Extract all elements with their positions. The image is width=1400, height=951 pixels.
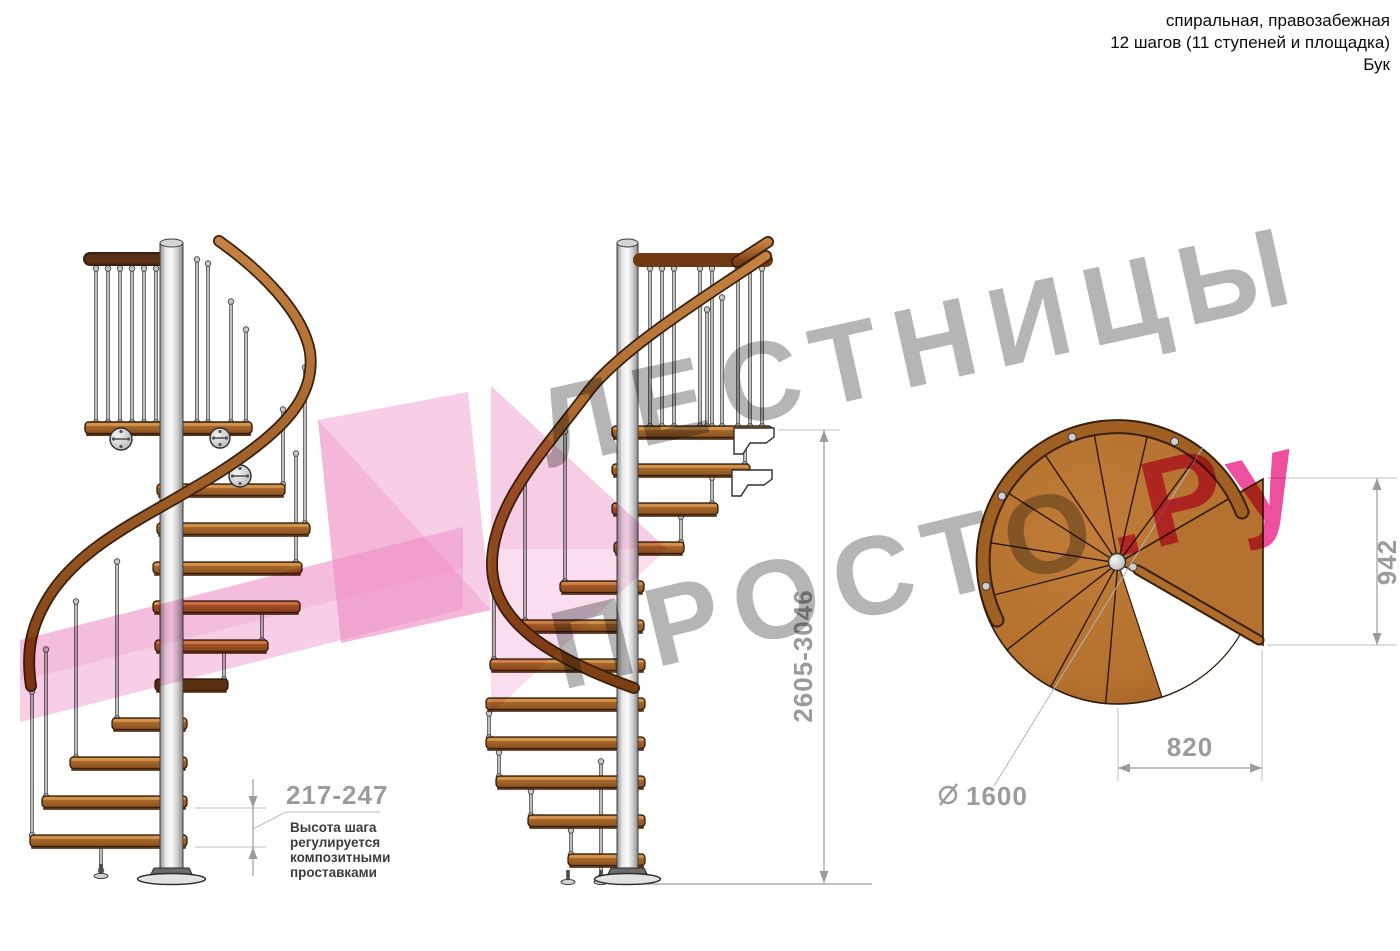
staircase-side-view-middle [486,239,872,885]
baluster-rod [141,266,147,426]
connector-screw [238,482,241,485]
wall-bracket [734,428,774,454]
baluster-knob [105,266,111,272]
baluster-rod [117,266,123,426]
connector-screw [231,474,234,477]
baluster-rod [522,469,528,624]
baluster-knob [153,266,159,272]
connector-screw [218,443,221,446]
connector-screw [119,445,122,448]
baluster-rod [678,514,684,546]
step-height-label: 217-247 [286,780,388,810]
baluster-rod [647,266,653,430]
center-pole [617,243,638,875]
dim-step-height: 217-247 Высота шага регулируется компози… [195,779,390,880]
product-material-line: Бук [1110,54,1390,76]
baluster-knob [93,266,99,272]
landing-width-label: 942 [1372,539,1400,585]
baluster-rod [496,750,502,780]
baluster-knob [243,327,249,333]
baluster-knob [129,266,135,272]
baluster-knob [280,407,286,413]
baluster-rod [205,261,211,426]
baluster-rod [671,266,677,430]
step-height-note-line2: регулируется [290,835,380,850]
pole-base-plate [595,874,661,885]
baluster-rod [29,689,35,839]
baluster-rod [194,257,200,426]
baluster-knob [598,759,604,765]
center-pole [160,243,183,875]
staircase-drawing: 942 820 1600 2605-3046 [0,0,1400,951]
baluster-rod [568,828,574,858]
baluster-rod [719,295,725,430]
plan-center-pole [1109,554,1126,571]
baluster-knob [114,559,120,565]
foot-cap [561,879,575,884]
product-steps-line: 12 шагов (11 ступеней и площадка) [1110,32,1390,54]
baluster-rod [105,266,111,426]
baluster-rod [735,266,741,430]
baluster-rod [709,475,715,507]
connector-screw [212,436,215,439]
product-type-line: спиральная, правозабежная [1110,10,1390,32]
dim-landing-width: 942 [1267,478,1400,645]
baluster-knob [141,266,147,272]
baluster-rod [153,266,159,426]
staircase-side-view-left [29,239,311,885]
foot-cap [94,873,108,878]
baluster-knob [719,295,725,301]
baluster-rod [486,711,492,741]
step-height-note-line1: Высота шага [290,820,377,835]
baluster-rod [73,599,79,761]
step-height-note-line3: композитными [290,850,390,865]
connector-screw [119,430,122,433]
baluster-knob [73,599,79,605]
baluster-knob [704,307,710,313]
baluster-rod [129,266,135,426]
baluster-knob [205,261,211,267]
baluster-knob [43,647,49,653]
baluster-rod [759,266,765,430]
baluster-knob [293,451,299,457]
plan-baluster-dot [998,492,1006,500]
plan-baluster-dot [982,582,990,590]
step-height-note-line4: проставками [290,865,377,880]
baluster-rod [747,266,753,430]
pole-cap [160,239,183,247]
dim-total-height: 2605-3046 [778,430,840,883]
connector-screw [225,436,228,439]
plan-baluster-dot [1171,438,1179,446]
baluster-rod [659,266,665,430]
baluster-knob [228,299,234,305]
connector-plate [210,428,230,448]
pole-base-plate [138,874,206,885]
baluster-rod [528,789,534,819]
connector-plate [110,428,132,450]
plan-baluster-dot [1068,433,1076,441]
drawing-title-block: спиральная, правозабежная 12 шагов (11 с… [1110,10,1390,76]
connector-screw [246,474,249,477]
diameter-label: 1600 [966,781,1028,811]
baluster-rod [114,559,120,722]
baluster-knob [194,257,200,263]
connector-screw [218,430,221,433]
connector-screw [238,467,241,470]
baluster-rod [697,266,703,430]
baluster-rod [243,327,249,426]
baluster-foot [94,864,108,879]
baluster-foot [561,870,575,885]
baluster-rod [293,451,299,566]
baluster-rod [562,429,568,585]
baluster-rod [43,647,49,800]
pole-cap [617,239,638,247]
staircase-plan-view [977,422,1263,704]
baluster-knob [117,266,123,272]
connector-screw [112,437,115,440]
total-height-label: 2605-3046 [788,589,818,722]
baluster-rod [704,307,710,430]
wall-bracket [732,470,772,496]
landing-depth-label: 820 [1167,732,1213,762]
baluster-rod [228,299,234,426]
baluster-rod [93,266,99,426]
connector-screw [127,437,130,440]
